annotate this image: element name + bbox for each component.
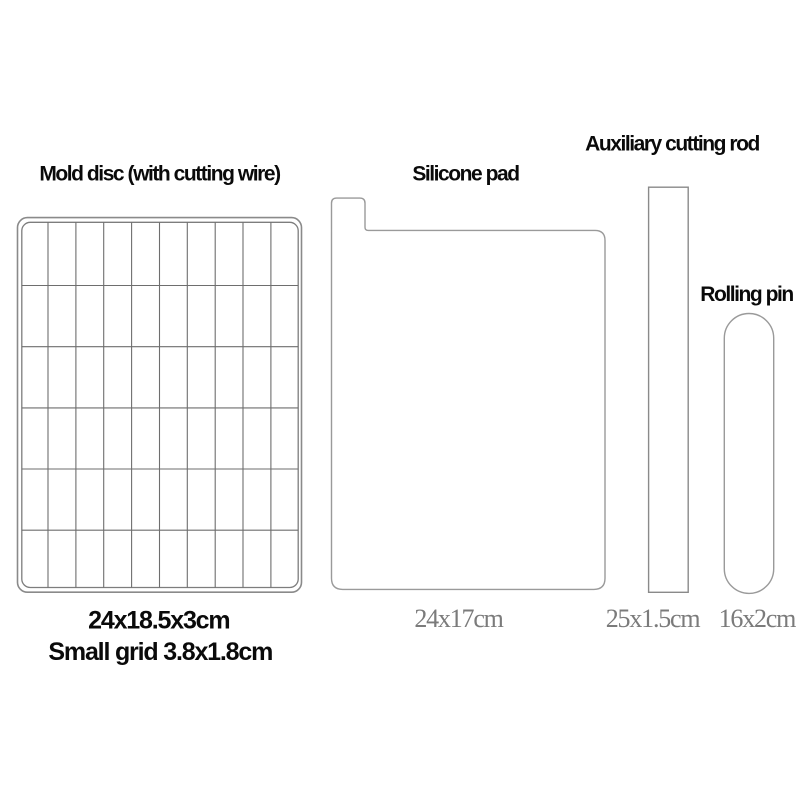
svg-text:Rolling pin: Rolling pin — [700, 283, 793, 306]
svg-text:Silicone pad: Silicone pad — [412, 163, 519, 186]
svg-text:24x18.5x3cm: 24x18.5x3cm — [88, 607, 229, 635]
svg-text:Auxiliary cutting rod: Auxiliary cutting rod — [585, 133, 759, 156]
svg-text:16x2cm: 16x2cm — [719, 604, 797, 633]
svg-text:24x17cm: 24x17cm — [414, 604, 503, 633]
svg-text:25x1.5cm: 25x1.5cm — [606, 604, 701, 633]
svg-text:Small grid 3.8x1.8cm: Small grid 3.8x1.8cm — [48, 638, 272, 666]
svg-text:Mold disc (with cutting wire): Mold disc (with cutting wire) — [39, 163, 280, 186]
